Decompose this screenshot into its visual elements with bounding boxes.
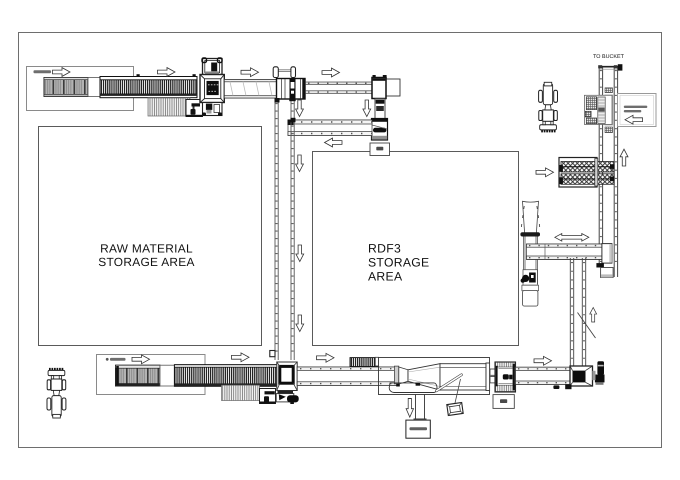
svg-text:RAW MATERIAL: RAW MATERIAL [100,241,193,255]
svg-text:AREA: AREA [368,270,403,284]
svg-text:RDF3: RDF3 [368,242,401,256]
svg-text:TO BUCKET: TO BUCKET [593,54,624,60]
svg-text:STORAGE: STORAGE [368,256,429,270]
svg-text:STORAGE AREA: STORAGE AREA [98,255,195,269]
